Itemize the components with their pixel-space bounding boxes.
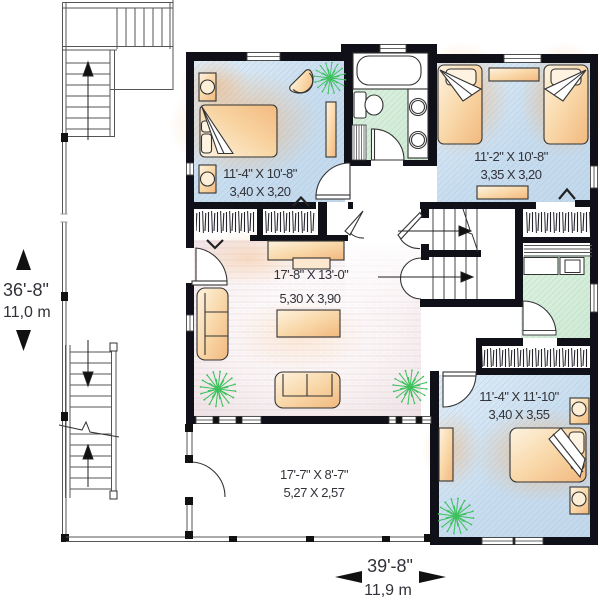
svg-text:11'-4" X 10'-8": 11'-4" X 10'-8" [223,166,298,181]
svg-text:17'-8" X 13'-0": 17'-8" X 13'-0" [274,267,350,282]
svg-text:11,0 m: 11,0 m [3,304,51,321]
svg-text:5,30 X 3,90: 5,30 X 3,90 [280,291,341,306]
svg-text:5,27 X 2,57: 5,27 X 2,57 [284,485,345,500]
svg-text:11'-4" X 11'-10": 11'-4" X 11'-10" [479,389,559,404]
svg-text:3,40 X 3,20: 3,40 X 3,20 [230,184,291,199]
svg-text:3,35 X 3,20: 3,35 X 3,20 [481,167,542,182]
svg-text:39'-8": 39'-8" [367,556,413,576]
svg-text:11'-2" X 10'-8": 11'-2" X 10'-8" [474,149,549,164]
svg-text:36'-8": 36'-8" [3,280,49,300]
svg-text:3,40 X 3,55: 3,40 X 3,55 [489,407,550,422]
svg-text:11,9 m: 11,9 m [364,582,412,599]
svg-text:17'-7" X 8'-7": 17'-7" X 8'-7" [280,467,349,482]
